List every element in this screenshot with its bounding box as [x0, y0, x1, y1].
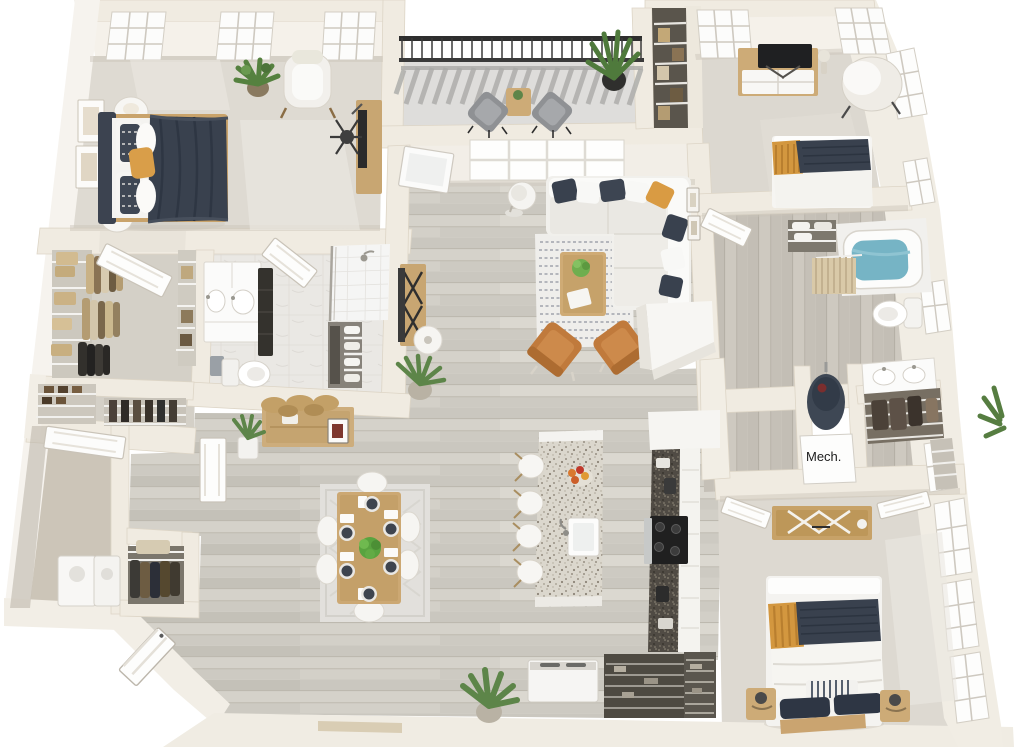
svg-text:Mech.: Mech.: [806, 449, 841, 464]
